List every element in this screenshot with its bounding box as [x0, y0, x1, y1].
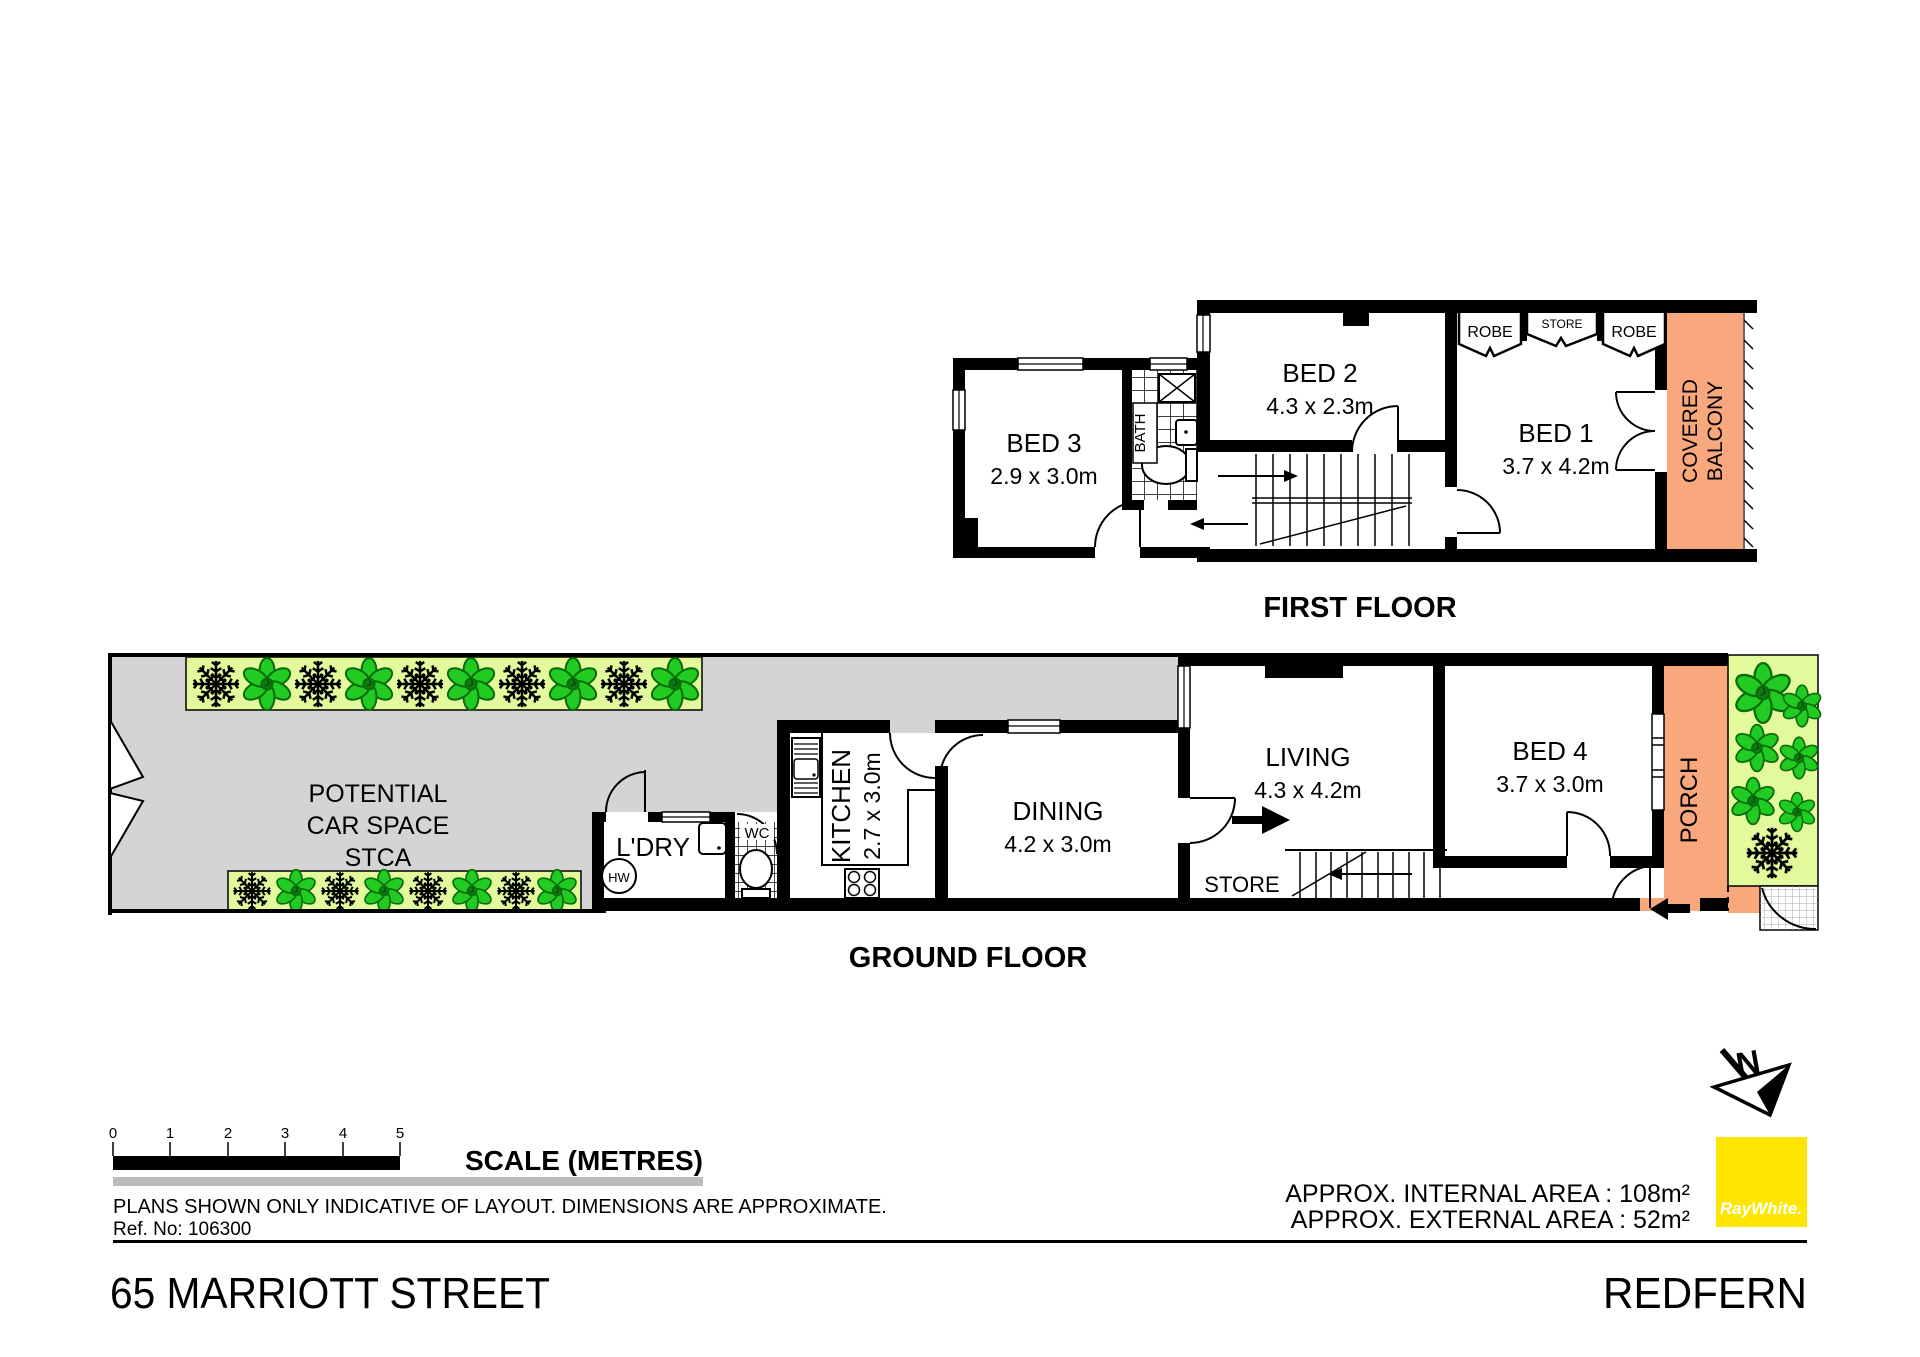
fern-icon: [497, 872, 534, 909]
bed1-dims: 3.7 x 4.2m: [1502, 453, 1609, 479]
scale-tick-0: 0: [109, 1125, 117, 1142]
robe-left-label: ROBE: [1467, 324, 1512, 341]
kitchen-name: KITCHEN: [826, 749, 856, 863]
fern-icon: [409, 872, 446, 909]
footer-divider: [113, 1240, 1807, 1243]
ground-floor-caption: GROUND FLOOR: [849, 942, 1087, 974]
bed4-dims: 3.7 x 3.0m: [1496, 771, 1603, 797]
carspace-line2: CAR SPACE: [307, 812, 450, 840]
scale-tick-2: 2: [224, 1125, 232, 1142]
robe-right-label: ROBE: [1611, 324, 1656, 341]
external-area-text: APPROX. EXTERNAL AREA : 52m²: [1291, 1206, 1690, 1234]
fern-icon: [397, 661, 443, 707]
bed3-name: BED 3: [1006, 428, 1081, 458]
laundry-label: L'DRY: [616, 832, 690, 862]
fern-icon: [233, 872, 270, 909]
hot-water-label: HW: [608, 870, 630, 885]
fern-icon: [1747, 828, 1798, 879]
floorplan-svg: ROBE STORE ROBE BATH: [0, 0, 1920, 1357]
bed2-name: BED 2: [1282, 358, 1357, 388]
floorplan-page: ROBE STORE ROBE BATH: [0, 0, 1920, 1357]
suburb-name: REDFERN: [1603, 1269, 1807, 1318]
dining-dims: 4.2 x 3.0m: [1004, 831, 1111, 857]
bed1-name: BED 1: [1518, 418, 1593, 448]
scale-tick-5: 5: [396, 1125, 404, 1142]
store-label: STORE: [1204, 872, 1279, 897]
internal-area-text: APPROX. INTERNAL AREA : 108m²: [1285, 1180, 1690, 1208]
bath-label: BATH: [1132, 414, 1149, 453]
fern-icon: [295, 661, 341, 707]
scale-divider: [113, 1177, 703, 1186]
raywhite-logo-text: RayWhite.: [1720, 1199, 1802, 1218]
balcony-label-line1: COVERED: [1679, 379, 1702, 483]
raywhite-logo: RayWhite.: [1716, 1137, 1807, 1227]
living-name: LIVING: [1265, 742, 1350, 772]
scale-tick-3: 3: [281, 1125, 289, 1142]
living-dims: 4.3 x 4.2m: [1254, 777, 1361, 803]
balcony-label-line2: BALCONY: [1704, 381, 1727, 481]
bed4-name: BED 4: [1512, 736, 1587, 766]
wc-label: WC: [745, 825, 770, 842]
scale-label: SCALE (METRES): [465, 1145, 703, 1176]
fern-icon: [499, 661, 545, 707]
bed3-dims: 2.9 x 3.0m: [990, 463, 1097, 489]
street-address: 65 MARRIOTT STREET: [110, 1269, 550, 1318]
bed2-dims: 4.3 x 2.3m: [1266, 393, 1373, 419]
carspace-line3: STCA: [345, 844, 412, 872]
scale-tick-1: 1: [166, 1125, 174, 1142]
store-closet-label: STORE: [1541, 317, 1582, 331]
bathroom: BATH: [1132, 370, 1197, 500]
carspace-line1: POTENTIAL: [309, 780, 448, 808]
ref-number: Ref. No: 106300: [113, 1219, 251, 1240]
wc-toilet-icon: [740, 850, 772, 888]
scale-bar-rule: [113, 1156, 400, 1170]
porch-entry-strip: [1728, 886, 1760, 913]
first-floor-caption: FIRST FLOOR: [1263, 592, 1456, 624]
scale-tick-4: 4: [339, 1125, 347, 1142]
kitchen-dims: 2.7 x 3.0m: [859, 752, 885, 859]
porch-label: PORCH: [1676, 757, 1703, 844]
fern-icon: [601, 661, 647, 707]
dining-name: DINING: [1013, 796, 1104, 826]
fern-icon: [321, 872, 358, 909]
fern-icon: [193, 661, 239, 707]
disclaimer-text: PLANS SHOWN ONLY INDICATIVE OF LAYOUT. D…: [113, 1196, 887, 1218]
washing-machine-icon: [699, 823, 726, 854]
